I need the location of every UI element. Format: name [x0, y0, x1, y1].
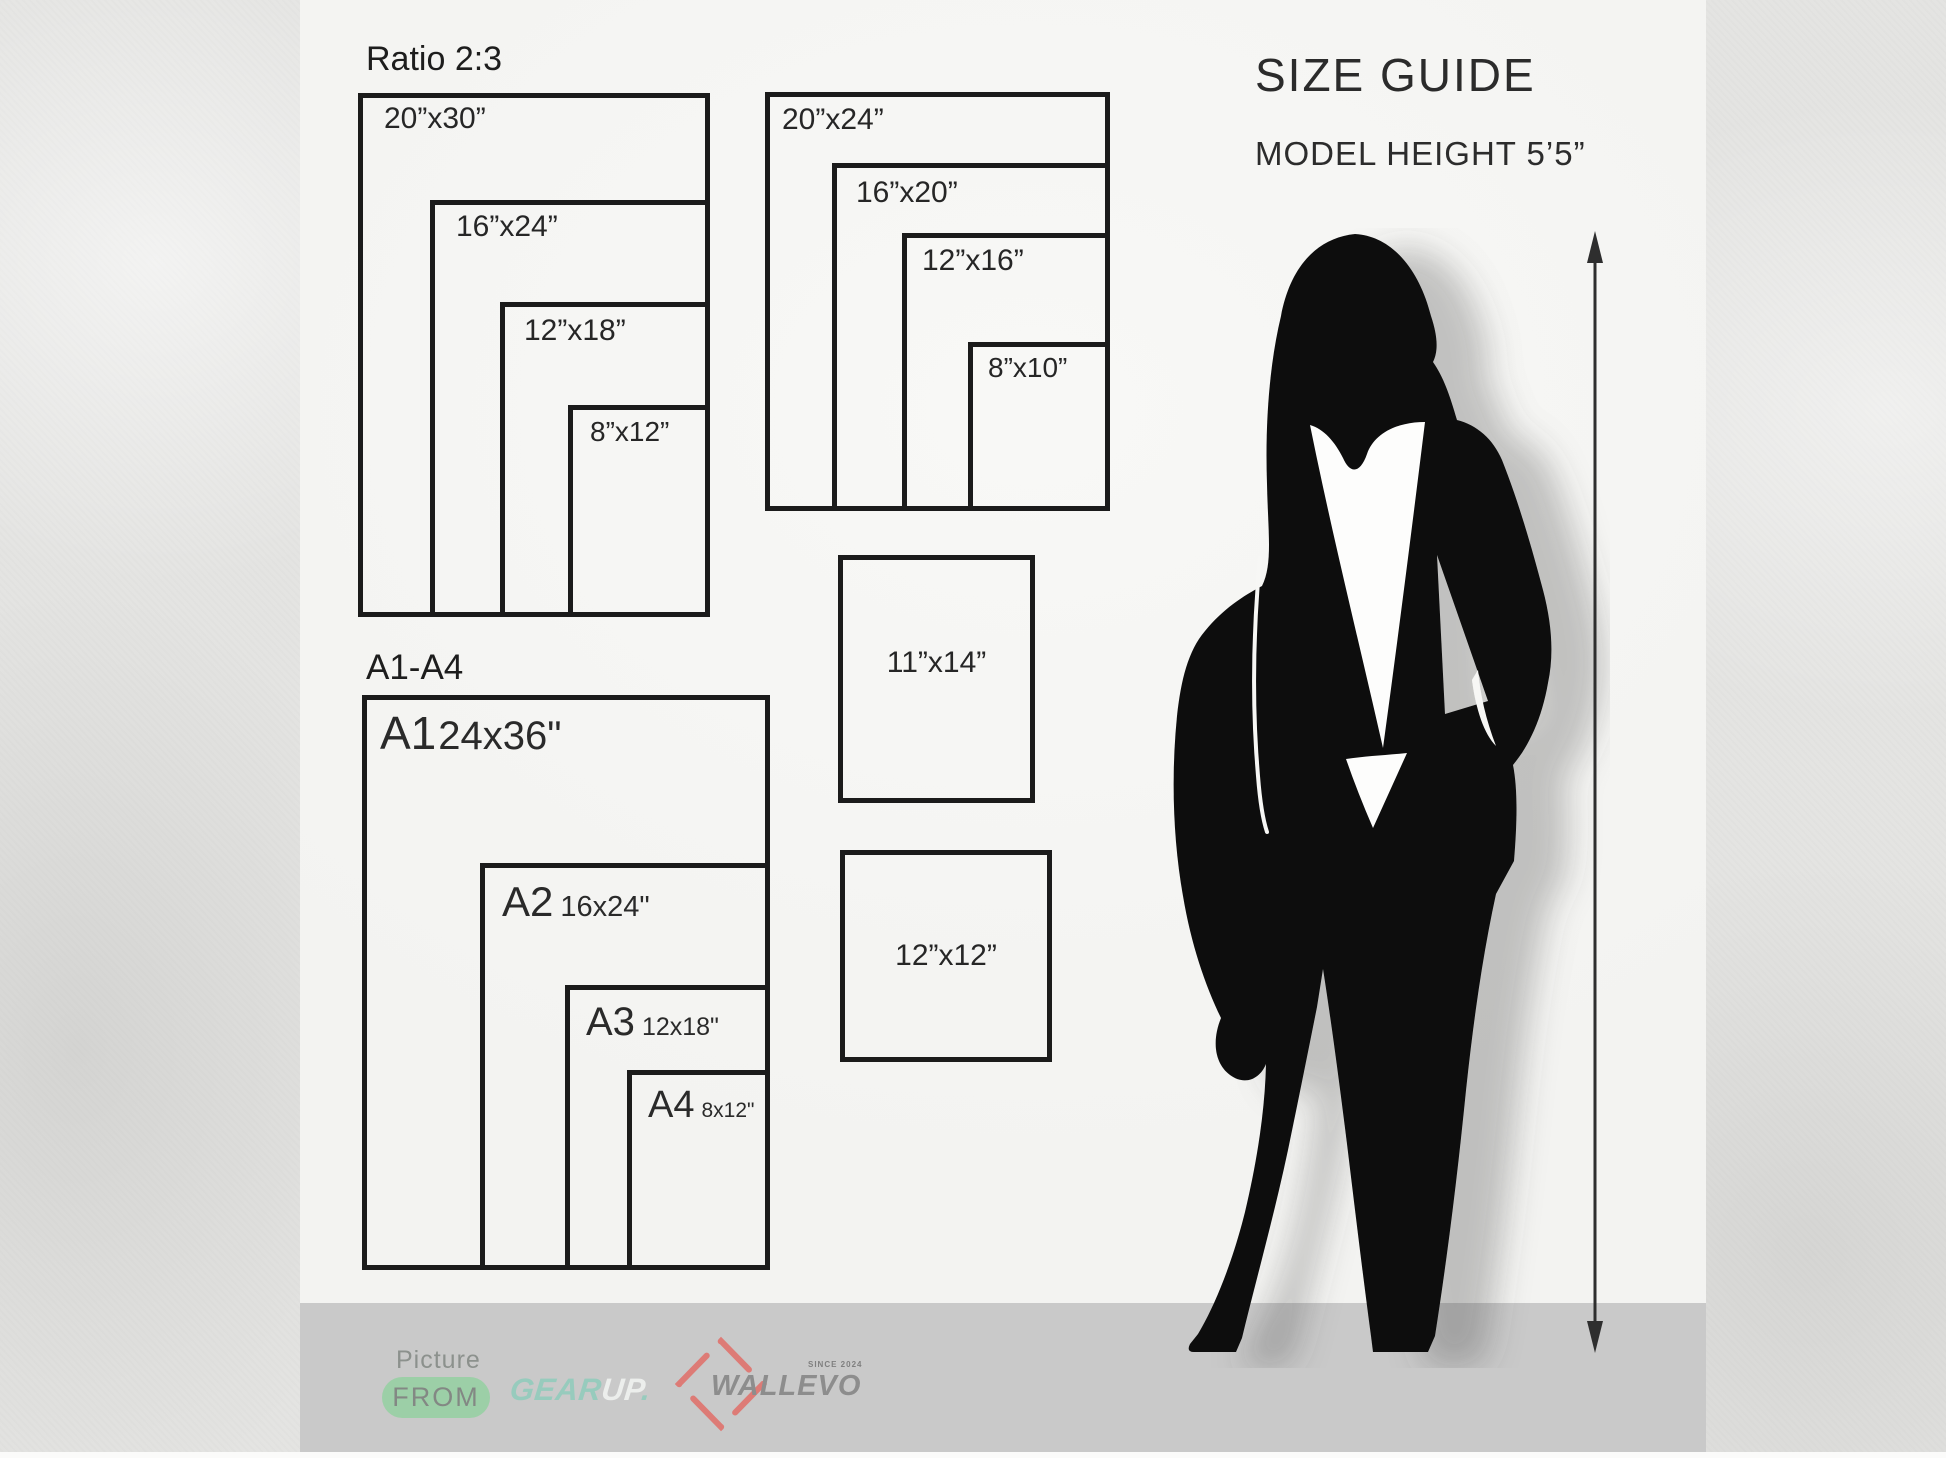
gearup-logo-gear: GEAR [508, 1372, 603, 1407]
bottom-edge-strip [0, 1452, 1946, 1458]
frame-a1-label: A1 24x36" [380, 706, 561, 760]
frame-a3-size: 12x18" [642, 1013, 719, 1042]
frame-12x12-label: 12”x12” [840, 850, 1052, 1062]
ratio-group-title: Ratio 2:3 [366, 40, 502, 79]
size-guide-title: SIZE GUIDE [1255, 48, 1536, 102]
frame-11x14-label: 11”x14” [838, 555, 1035, 771]
frame-16x24-label: 16”x24” [456, 210, 558, 244]
wallevo-since-label: SINCE 2024 [808, 1360, 862, 1369]
a-group-title: A1-A4 [366, 648, 463, 688]
frame-a3-label: A3 12x18" [586, 1000, 719, 1045]
model-silhouette [1140, 228, 1610, 1368]
frame-8x12-label: 8”x12” [590, 416, 669, 448]
frame-a3-name: A3 [586, 1000, 635, 1045]
frame-20x30-label: 20”x30” [384, 102, 486, 136]
frame-a4-label: A4 8x12" [648, 1084, 754, 1127]
frame-16x20-label: 16”x20” [856, 176, 958, 210]
frame-12x18-label: 12”x18” [524, 314, 626, 348]
frame-20x24-label: 20”x24” [782, 103, 884, 137]
measure-arrow-icon [1584, 231, 1606, 1353]
from-badge-label: FROM [392, 1382, 479, 1413]
picture-label: Picture [396, 1346, 481, 1375]
wallevo-logo: WALLEVO [711, 1370, 861, 1403]
from-badge: FROM [382, 1377, 490, 1418]
frame-a4-size: 8x12" [701, 1099, 754, 1123]
gearup-logo-up: UP [600, 1372, 644, 1407]
frame-a2-name: A2 [502, 878, 553, 926]
frame-8x10-label: 8”x10” [988, 352, 1067, 384]
frame-12x16-label: 12”x16” [922, 244, 1024, 278]
frame-a2-label: A2 16x24" [502, 878, 650, 926]
frame-a1-name: A1 [380, 706, 436, 760]
model-height-label: MODEL HEIGHT 5’5” [1255, 135, 1586, 173]
frame-a1-size: 24x36" [438, 714, 561, 759]
frame-a2-size: 16x24" [560, 891, 649, 924]
size-guide-poster: Ratio 2:3 20”x30” 16”x24” 12”x18” 8”x12”… [0, 0, 1946, 1458]
frame-a4-name: A4 [648, 1084, 694, 1127]
gearup-logo: GEARUP. [508, 1372, 653, 1408]
